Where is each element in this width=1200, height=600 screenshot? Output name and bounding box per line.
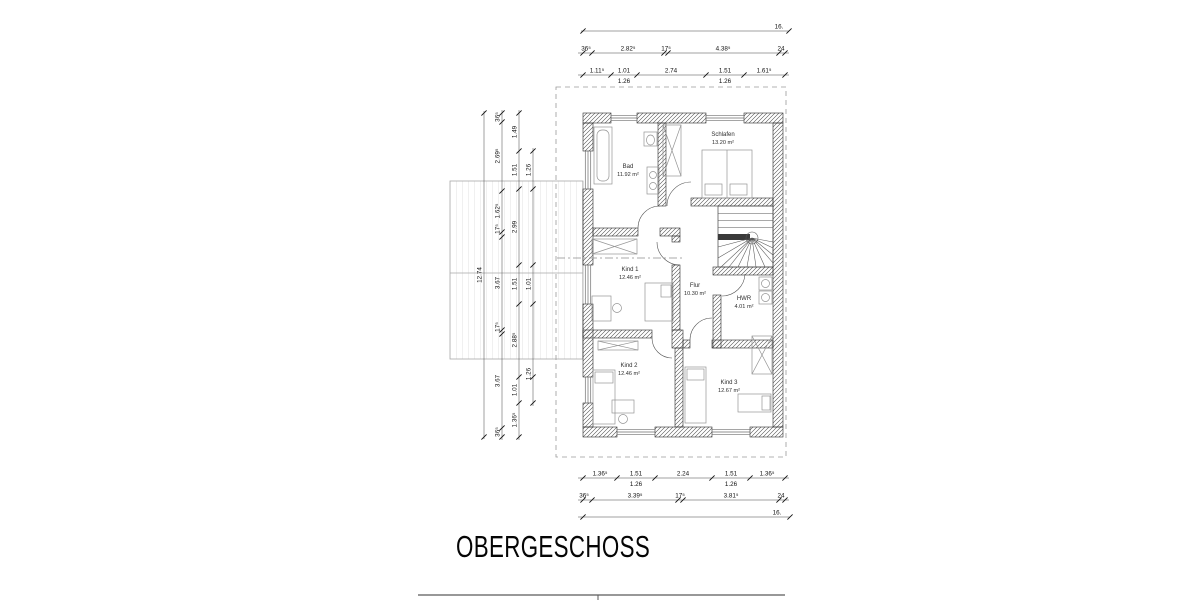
dimension-label: 1.26: [630, 481, 643, 488]
dimension-label: 1.11⁵: [590, 68, 605, 75]
dimension-chain: 36⁵2.82⁵17⁵4.38⁵24: [578, 46, 789, 56]
room-area: 12.46 m²: [619, 275, 641, 281]
dimension-label: 1.26: [618, 78, 631, 85]
room-name: Bad: [623, 164, 634, 170]
dimension-label: 3.67: [495, 374, 502, 387]
dimension-label: 1.51: [512, 163, 519, 176]
room-label: HWR4.01 m²: [735, 296, 754, 310]
desk-kind1: [592, 296, 622, 321]
dimension-label: 1.62⁵: [495, 203, 502, 218]
room-area: 12.67 m²: [718, 388, 740, 394]
window-bottom-kind2: [617, 429, 655, 434]
bed-schlafen: [702, 150, 752, 198]
dimension-label: 1.51: [725, 471, 738, 478]
room-name: Kind 2: [620, 363, 638, 369]
dimension-label: 1.01: [512, 383, 519, 396]
dimension-label: 36⁵: [579, 493, 589, 500]
bed-kind1: [645, 283, 673, 321]
dimension-label: 1.26: [526, 163, 533, 176]
dimension-label: 17⁵: [661, 46, 671, 53]
door-kind2: [652, 338, 672, 358]
dimension-chain: 36⁵3.39⁵17⁵3.81⁵24: [578, 493, 789, 503]
toilet: [644, 132, 657, 146]
room-labels: Bad11.92 m²Schlafen13.20 m²Kind 112.46 m…: [617, 132, 753, 394]
washer-dryer: [759, 277, 772, 304]
window-left-kind1: [585, 265, 590, 304]
dimension-label: 36⁵: [495, 427, 502, 437]
wardrobe-kind1: [592, 239, 637, 254]
door-kind1: [657, 242, 680, 265]
lower-roof-extension: [450, 181, 583, 359]
dimension-label: 1.01: [618, 68, 631, 75]
room-name: Kind 1: [621, 267, 639, 273]
dimension-label: 1.36⁵: [512, 412, 519, 427]
door-hwr: [722, 274, 745, 296]
floor-plan-drawing: 16.36⁵2.82⁵17⁵4.38⁵241.11⁵1.012.741.511.…: [0, 0, 1200, 600]
dimension-label: 4.38⁵: [716, 46, 731, 53]
dimension-label: 2.69⁵: [495, 148, 502, 163]
room-label: Flur10.30 m²: [684, 283, 706, 297]
room-name: Schlafen: [711, 132, 734, 138]
dimension-label: 16.: [775, 24, 784, 31]
floor-title: OBERGESCHOSS: [456, 529, 650, 565]
dimension-label: 12.74: [477, 267, 484, 283]
room-area: 12.46 m²: [618, 371, 640, 377]
dimension-label: 1.26: [725, 481, 738, 488]
room-area: 10.30 m²: [684, 291, 706, 297]
room-name: Flur: [690, 283, 700, 289]
dimension-label: 36⁵: [581, 46, 591, 53]
room-name: HWR: [737, 296, 752, 302]
dimension-label: 17⁵: [495, 224, 502, 234]
dimension-label: 1.36⁵: [760, 471, 775, 478]
dimension-label: 1.61⁵: [757, 68, 772, 75]
dimension-label: 1.51: [512, 277, 519, 290]
window-left-kind2: [585, 377, 590, 403]
dimension-label: 3.39⁵: [628, 493, 643, 500]
room-label: Kind 312.67 m²: [718, 380, 740, 394]
room-label: Schlafen13.20 m²: [711, 132, 734, 146]
dimension-label: 2.99: [512, 220, 519, 233]
dimension-label: 2.82⁵: [621, 46, 636, 53]
dimension-label: 2.24: [677, 471, 690, 478]
window-left-bad: [585, 151, 590, 189]
dimension-label: 17⁵: [495, 322, 502, 332]
washbasin: [647, 167, 659, 194]
door-bad: [638, 206, 660, 228]
dimension-chain: 16.: [578, 510, 793, 520]
wardrobe-kind2: [598, 341, 638, 350]
dimension-chain: 1.11⁵1.012.741.511.61⁵1.261.26: [578, 68, 789, 86]
dimension-label: 1.49: [512, 125, 519, 138]
interior-walls: [583, 123, 773, 427]
door-schlafen: [667, 182, 691, 206]
door-kind3: [690, 318, 712, 340]
room-name: Kind 3: [720, 380, 738, 386]
dimension-label: 16.: [773, 510, 782, 517]
dimension-label: 1.26: [719, 78, 732, 85]
room-area: 13.20 m²: [712, 140, 734, 146]
bed-kind3b: [738, 394, 771, 412]
dimension-label: 1.36⁵: [593, 471, 608, 478]
dimension-chain: 1.36⁵1.512.241.511.36⁵1.261.26: [578, 471, 789, 489]
dimension-label: 2.88⁵: [512, 332, 519, 347]
window-bottom-kind3: [712, 429, 750, 434]
dimension-label: 1.01: [526, 277, 533, 290]
dimension-label: 36⁵: [495, 112, 502, 122]
bathtub: [594, 127, 612, 184]
room-label: Kind 112.46 m²: [619, 267, 641, 281]
dimension-label: 24: [777, 493, 785, 500]
dimension-label: 2.74: [665, 68, 678, 75]
dimension-label: 1.26: [526, 367, 533, 380]
drawing-sheet: 16.36⁵2.82⁵17⁵4.38⁵241.11⁵1.012.741.511.…: [0, 0, 1200, 600]
dimension-label: 3.81⁵: [724, 493, 739, 500]
room-area: 4.01 m²: [735, 304, 754, 310]
bed-kind3: [685, 367, 706, 423]
room-label: Bad11.92 m²: [617, 164, 639, 178]
bed-kind2: [593, 370, 615, 424]
dimension-chain: 16.: [580, 24, 791, 34]
window-top-schlafen: [706, 115, 744, 120]
dimension-label: 17⁵: [675, 493, 685, 500]
room-area: 11.92 m²: [617, 172, 639, 178]
staircase: [718, 206, 773, 267]
titleblock-line: [418, 595, 785, 600]
room-label: Kind 212.46 m²: [618, 363, 640, 377]
dimension-label: 24: [777, 46, 785, 53]
dimension-label: 1.51: [719, 68, 732, 75]
dimension-label: 1.51: [630, 471, 643, 478]
window-top-bad: [611, 115, 637, 120]
dimension-label: 3.67: [495, 276, 502, 289]
